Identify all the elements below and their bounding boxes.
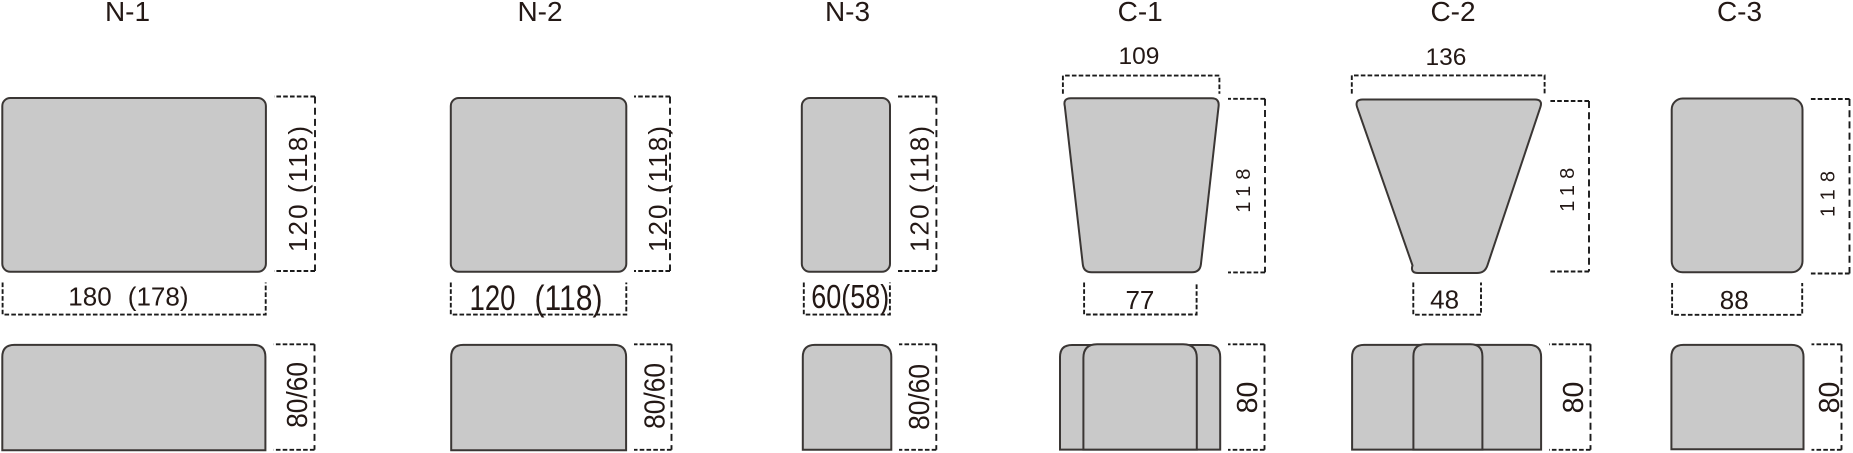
svg-text:120(118): 120(118) [470,279,603,318]
svg-text:N-2: N-2 [517,0,562,27]
svg-text:C-3: C-3 [1717,0,1762,27]
svg-text:88: 88 [1720,285,1749,315]
svg-text:118: 118 [1557,168,1579,212]
svg-text:109: 109 [1119,43,1160,70]
svg-text:80/60: 80/60 [282,362,314,428]
svg-text:N-3: N-3 [825,0,870,27]
svg-text:48: 48 [1430,284,1459,314]
svg-text:120 (118): 120 (118) [904,126,934,252]
svg-text:77: 77 [1125,285,1154,315]
svg-text:80/60: 80/60 [639,363,671,429]
svg-text:80: 80 [1232,382,1264,414]
svg-text:118: 118 [1818,171,1840,217]
svg-text:120 (118): 120 (118) [283,126,313,252]
svg-text:N-1: N-1 [105,0,150,27]
svg-text:C-1: C-1 [1118,0,1163,27]
svg-text:120 (118): 120 (118) [643,126,673,252]
svg-text:80/60: 80/60 [904,364,936,430]
svg-text:136: 136 [1425,44,1466,71]
svg-text:80: 80 [1814,382,1846,414]
svg-text:80: 80 [1558,382,1590,414]
svg-text:118: 118 [1233,169,1255,213]
svg-text:180(178): 180(178) [68,282,188,312]
svg-text:60(58): 60(58) [811,278,889,315]
svg-text:C-2: C-2 [1430,0,1475,27]
